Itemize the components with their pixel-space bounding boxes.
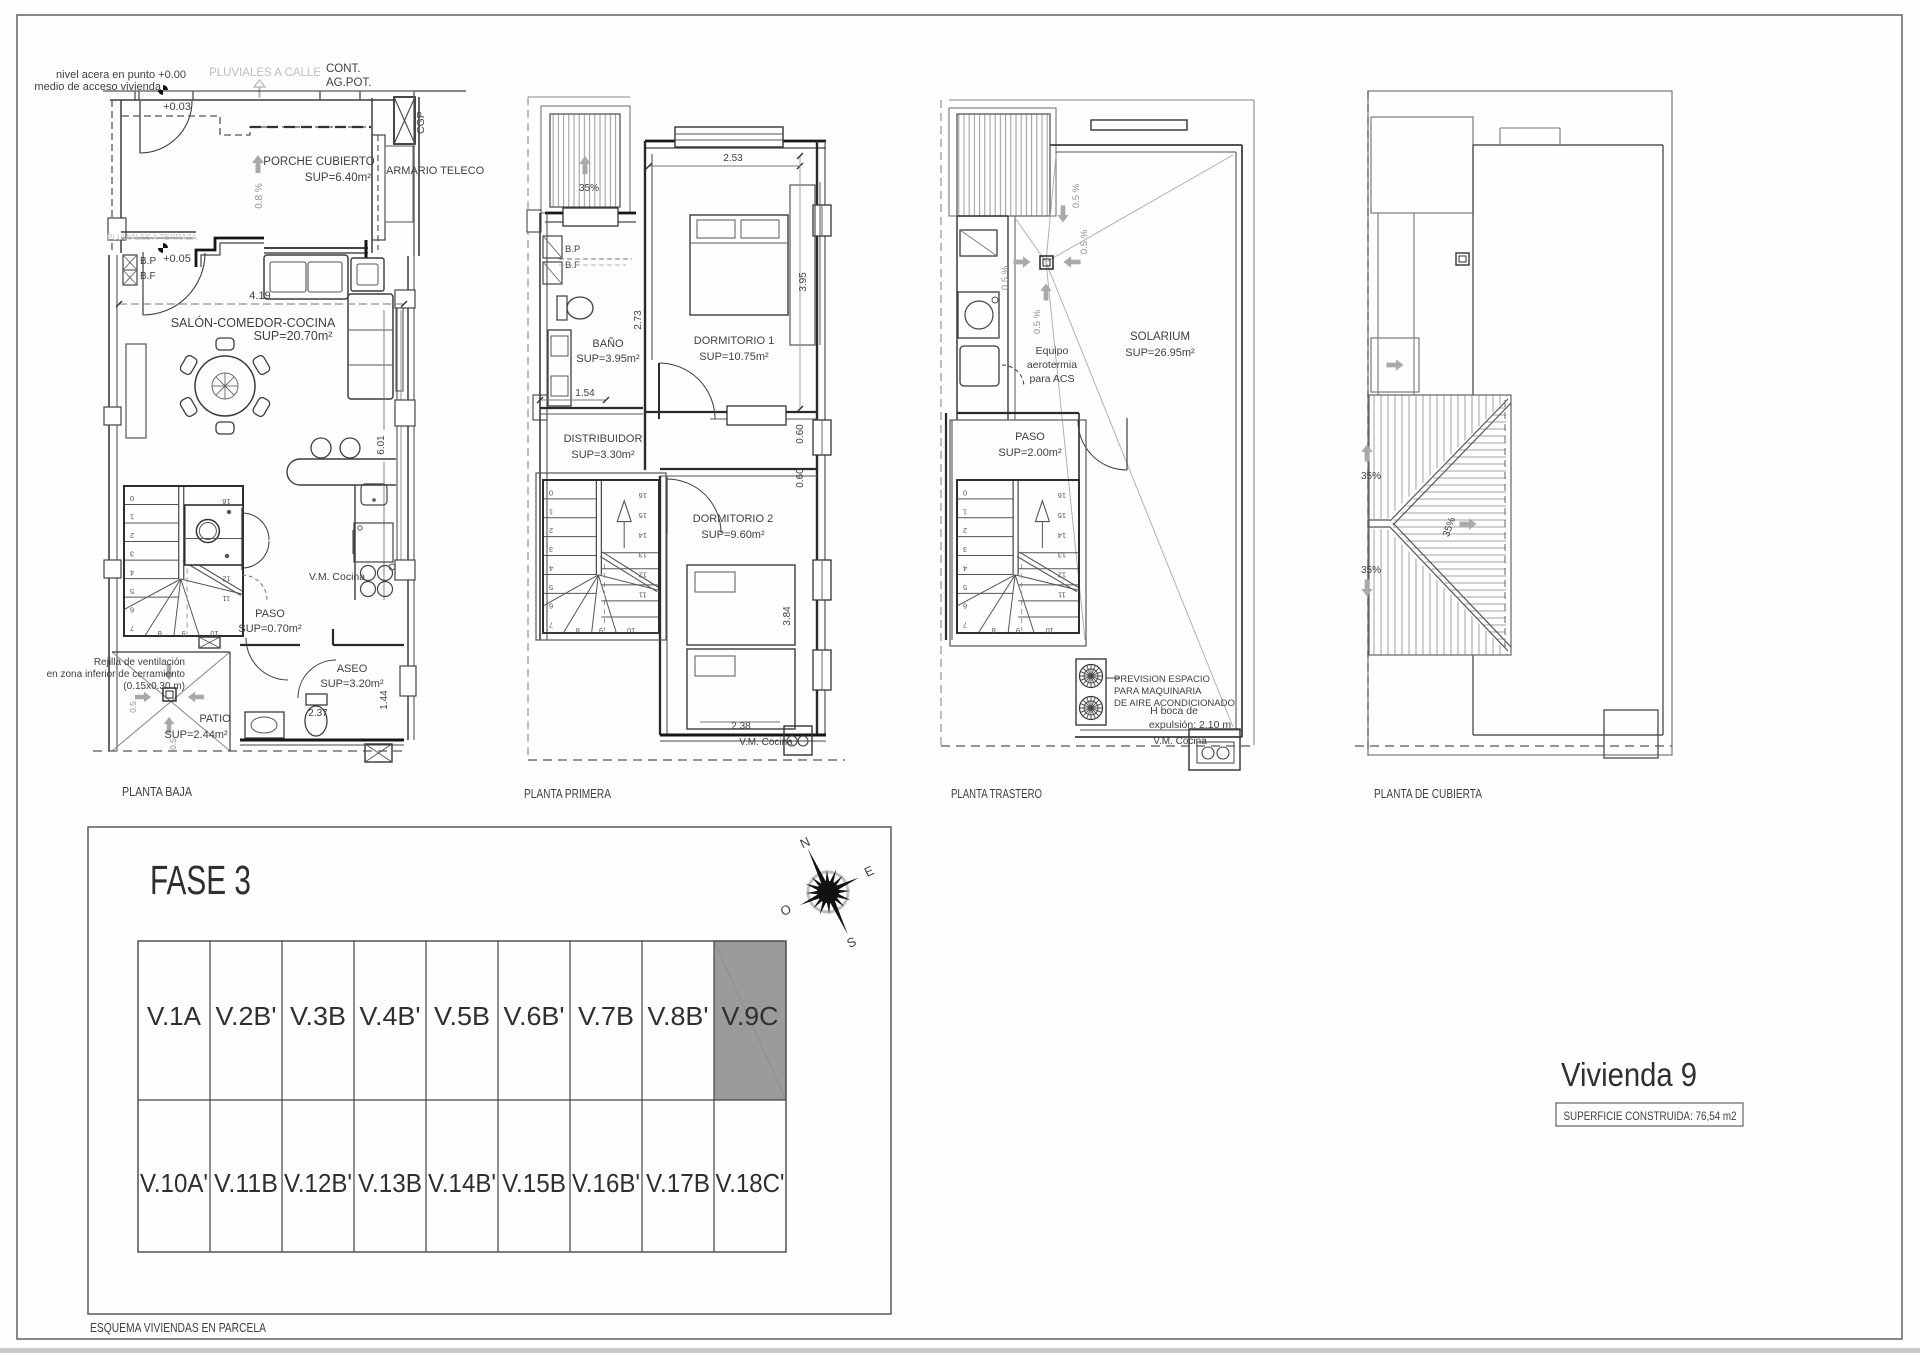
svg-text:13: 13 (639, 551, 647, 560)
svg-text:7: 7 (549, 621, 553, 630)
svg-text:PREVISION ESPACIO: PREVISION ESPACIO (1114, 674, 1210, 685)
svg-text:12: 12 (222, 575, 230, 584)
svg-text:0.5: 0.5 (128, 701, 138, 713)
svg-text:V.1A: V.1A (147, 1001, 202, 1031)
svg-text:12: 12 (1058, 571, 1066, 580)
svg-text:+0.05: +0.05 (163, 253, 191, 265)
svg-text:H boca de: H boca de (1150, 705, 1198, 717)
svg-text:2: 2 (963, 526, 967, 535)
svg-text:11: 11 (222, 594, 230, 603)
svg-text:V.M. Cocina: V.M. Cocina (739, 737, 793, 748)
svg-text:3: 3 (963, 545, 967, 554)
svg-text:9: 9 (181, 629, 185, 638)
svg-text:DORMITORIO 2: DORMITORIO 2 (693, 513, 773, 525)
svg-text:SOLARIUM: SOLARIUM (1130, 331, 1190, 343)
svg-text:PLUVIALES A CALLE: PLUVIALES A CALLE (209, 67, 321, 79)
svg-text:V.18C': V.18C' (716, 1168, 785, 1198)
svg-text:V.5B: V.5B (434, 1001, 490, 1031)
svg-text:4: 4 (130, 568, 134, 577)
svg-text:35%: 35% (1361, 471, 1381, 482)
svg-text:SUPERFICIE CONSTRUIDA: 76,54 m: SUPERFICIE CONSTRUIDA: 76,54 m2 (1564, 1109, 1737, 1123)
svg-text:8: 8 (158, 629, 162, 638)
svg-text:AG.POT.: AG.POT. (326, 77, 371, 89)
svg-text:V.15B: V.15B (502, 1168, 566, 1198)
svg-text:2.53: 2.53 (723, 153, 743, 164)
svg-text:V.13B: V.13B (358, 1168, 422, 1198)
svg-text:FASE 3: FASE 3 (150, 857, 251, 903)
svg-text:6: 6 (963, 602, 967, 611)
svg-text:PLANTA TRASTERO: PLANTA TRASTERO (951, 787, 1042, 801)
svg-text:15: 15 (1058, 511, 1066, 520)
svg-text:V.12B': V.12B' (284, 1168, 352, 1198)
svg-text:1.44: 1.44 (379, 690, 390, 710)
svg-text:1: 1 (130, 513, 134, 522)
svg-text:0.60: 0.60 (795, 468, 806, 488)
svg-text:aerotermia: aerotermia (1027, 359, 1077, 371)
svg-text:0.5 %: 0.5 % (1071, 183, 1082, 208)
svg-text:B.F: B.F (565, 260, 580, 271)
svg-text:Vivienda 9: Vivienda 9 (1561, 1056, 1697, 1093)
svg-text:CGP: CGP (415, 111, 427, 134)
svg-text:2.38: 2.38 (731, 721, 751, 732)
svg-text:2.73: 2.73 (633, 310, 644, 330)
svg-text:2: 2 (549, 526, 553, 535)
svg-text:V.11B: V.11B (214, 1168, 278, 1198)
svg-text:3.84: 3.84 (782, 606, 793, 626)
svg-text:PASO: PASO (255, 608, 285, 620)
svg-text:PATIO: PATIO (199, 713, 231, 725)
svg-text:SALÓN-COMEDOR-COCINA: SALÓN-COMEDOR-COCINA (171, 315, 336, 330)
svg-text:V.9C: V.9C (722, 1001, 779, 1031)
svg-text:SUP=2.00m²: SUP=2.00m² (998, 447, 1062, 459)
svg-text:SUP=26.95m²: SUP=26.95m² (1125, 347, 1195, 359)
svg-text:SUP=3.95m²: SUP=3.95m² (576, 353, 640, 365)
svg-text:V.2B': V.2B' (216, 1001, 277, 1031)
svg-text:6.01: 6.01 (376, 435, 387, 455)
svg-text:2.37: 2.37 (308, 708, 328, 719)
svg-text:0.8 %: 0.8 % (254, 183, 265, 209)
svg-text:PORCHE CUBIERTO: PORCHE CUBIERTO (263, 156, 374, 168)
svg-text:PLANTA BAJA: PLANTA BAJA (122, 785, 193, 799)
svg-text:1.54: 1.54 (575, 388, 595, 399)
svg-text:10: 10 (1046, 626, 1054, 635)
svg-text:35%: 35% (579, 183, 599, 194)
svg-text:V.16B': V.16B' (572, 1168, 640, 1198)
svg-text:0.60: 0.60 (795, 424, 806, 444)
svg-text:0: 0 (963, 488, 967, 497)
svg-text:3.95: 3.95 (798, 272, 809, 292)
svg-text:7: 7 (130, 624, 134, 633)
svg-text:V.M. Cocina: V.M. Cocina (309, 571, 365, 583)
svg-text:ARMARIO TELECO: ARMARIO TELECO (386, 165, 485, 177)
svg-text:SUP=3.20m²: SUP=3.20m² (320, 678, 384, 690)
svg-text:DISTRIBUIDOR: DISTRIBUIDOR (564, 433, 643, 445)
svg-text:0.5 %: 0.5 % (1000, 265, 1011, 290)
svg-text:0.5 %: 0.5 % (1079, 229, 1090, 254)
svg-text:V.8B': V.8B' (648, 1001, 709, 1031)
svg-text:SUP=9.60m²: SUP=9.60m² (701, 529, 765, 541)
svg-text:4: 4 (549, 564, 553, 573)
svg-text:V.10A': V.10A' (140, 1168, 208, 1198)
svg-text:4.19: 4.19 (249, 290, 270, 302)
svg-text:5: 5 (963, 583, 967, 592)
svg-text:V.4B': V.4B' (360, 1001, 421, 1031)
svg-text:V.14B': V.14B' (428, 1168, 496, 1198)
svg-text:9: 9 (1016, 626, 1020, 635)
svg-text:6: 6 (549, 602, 553, 611)
svg-text:4: 4 (963, 564, 967, 573)
svg-text:SUP=3.30m²: SUP=3.30m² (571, 449, 635, 461)
svg-text:ASEO: ASEO (337, 663, 368, 675)
svg-text:5: 5 (549, 583, 553, 592)
svg-text:PLUVIALES A TERRAZA: PLUVIALES A TERRAZA (107, 233, 197, 242)
svg-text:DORMITORIO 1: DORMITORIO 1 (694, 335, 774, 347)
svg-text:1: 1 (549, 507, 553, 516)
svg-text:11: 11 (639, 590, 647, 599)
svg-text:14: 14 (1058, 531, 1066, 540)
svg-text:SUP=10.75m²: SUP=10.75m² (699, 351, 769, 363)
svg-text:en zona inferior de cerramient: en zona inferior de cerramiento (47, 669, 186, 680)
svg-text:Equipo: Equipo (1036, 345, 1069, 357)
svg-text:3: 3 (549, 545, 553, 554)
svg-text:PASO: PASO (1015, 431, 1045, 443)
svg-text:nivel acera en punto +0.00: nivel acera en punto +0.00 (56, 69, 186, 81)
svg-text:5: 5 (130, 587, 134, 596)
svg-text:ESQUEMA VIVIENDAS EN PARCELA: ESQUEMA VIVIENDAS EN PARCELA (90, 1320, 266, 1335)
svg-text:2: 2 (130, 531, 134, 540)
svg-text:1: 1 (963, 507, 967, 516)
svg-text:3: 3 (130, 550, 134, 559)
svg-text:B.F: B.F (140, 271, 156, 282)
svg-text:B.P: B.P (565, 244, 580, 255)
svg-text:0.5 %: 0.5 % (1032, 309, 1043, 334)
svg-text:PARA MAQUINARIA: PARA MAQUINARIA (1114, 686, 1202, 697)
svg-text:V.17B: V.17B (646, 1168, 710, 1198)
svg-text:35%: 35% (1361, 565, 1381, 576)
svg-text:12: 12 (639, 571, 647, 580)
svg-text:(0.15x0.30 m): (0.15x0.30 m) (123, 681, 185, 692)
svg-text:8: 8 (992, 626, 996, 635)
svg-text:16: 16 (639, 491, 647, 500)
svg-text:+0.03: +0.03 (163, 101, 191, 113)
svg-text:CONT.: CONT. (326, 63, 361, 75)
svg-text:BAÑO: BAÑO (592, 337, 624, 350)
svg-text:6: 6 (130, 605, 134, 614)
svg-text:16: 16 (1058, 491, 1066, 500)
svg-text:SUP=20.70m²: SUP=20.70m² (254, 329, 333, 343)
svg-text:11: 11 (1058, 590, 1066, 599)
svg-text:SUP=6.40m²: SUP=6.40m² (305, 172, 371, 184)
svg-text:15: 15 (639, 511, 647, 520)
svg-text:PLANTA PRIMERA: PLANTA PRIMERA (524, 787, 612, 801)
svg-text:13: 13 (1058, 551, 1066, 560)
svg-text:14: 14 (639, 531, 647, 540)
svg-text:SUP=2.44m²: SUP=2.44m² (164, 729, 228, 741)
svg-text:SUP=0.70m²: SUP=0.70m² (238, 623, 302, 635)
svg-text:0: 0 (549, 488, 553, 497)
svg-text:0: 0 (130, 494, 134, 503)
svg-text:para ACS: para ACS (1030, 373, 1075, 385)
svg-text:7: 7 (963, 621, 967, 630)
svg-text:PLANTA DE CUBIERTA: PLANTA DE CUBIERTA (1374, 787, 1483, 801)
svg-text:V.7B: V.7B (578, 1001, 634, 1031)
svg-text:V.3B: V.3B (290, 1001, 346, 1031)
svg-text:V.6B': V.6B' (504, 1001, 565, 1031)
svg-text:Rejilla de ventilación: Rejilla de ventilación (94, 657, 185, 668)
